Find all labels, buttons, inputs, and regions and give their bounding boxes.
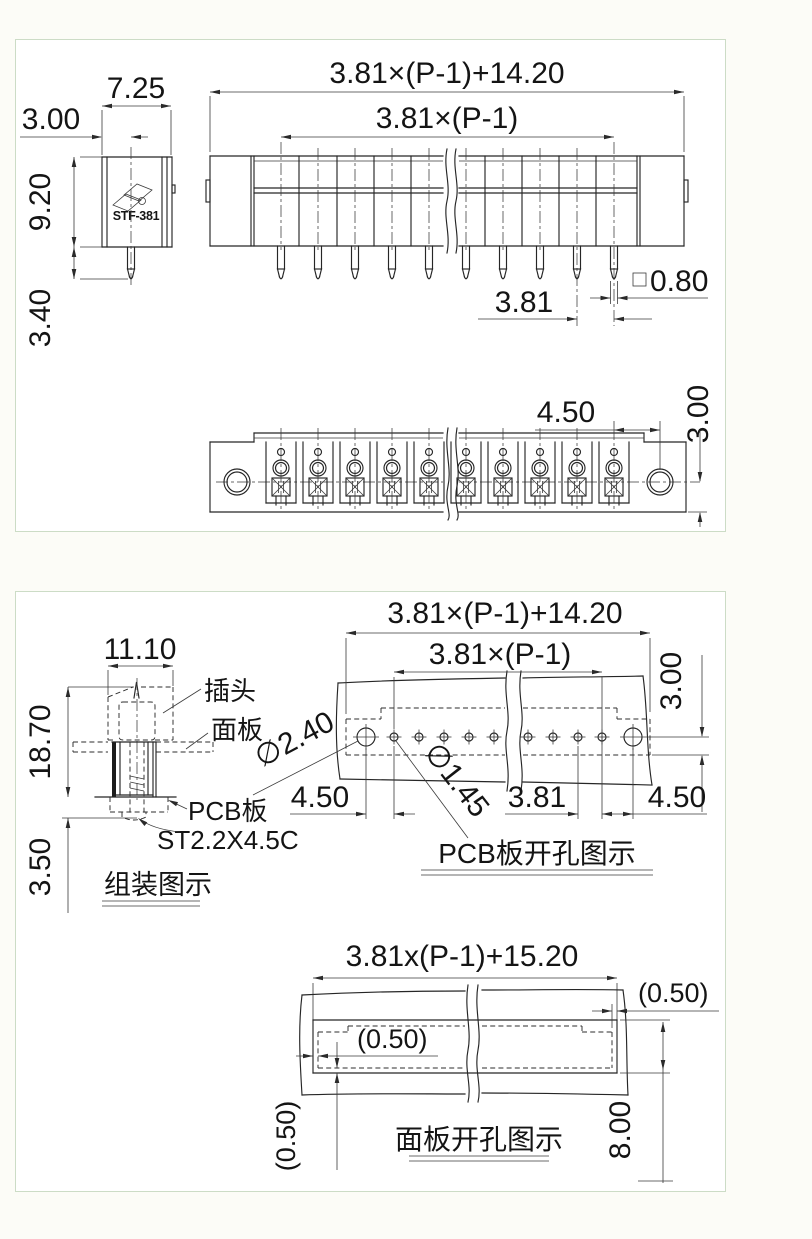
arrowhead bbox=[601, 296, 611, 301]
label-plug: 插头 bbox=[204, 676, 256, 706]
arrowhead bbox=[661, 1060, 666, 1070]
dim-pcb-pitch-span: 3.81×(P-1) bbox=[429, 638, 572, 671]
path-feature bbox=[502, 277, 505, 279]
path-feature bbox=[134, 682, 139, 698]
arrowhead bbox=[698, 512, 703, 522]
dim-pin-pitch: 3.81 bbox=[495, 286, 553, 319]
arrowhead bbox=[66, 687, 71, 697]
sheet2-drawing: 11.1018.703.50插头面板PCB板ST2.2X4.5C组装图示 3.8… bbox=[16, 592, 725, 1191]
dim-pin-square: 0.80 bbox=[650, 265, 708, 298]
pcb-hole-view: 3.81×(P-1)+14.203.81×(P-1)3.00∅2.40∅1.45… bbox=[249, 597, 709, 875]
arrowhead bbox=[346, 631, 356, 636]
path-feature bbox=[520, 671, 522, 791]
arrowhead bbox=[318, 1054, 328, 1059]
arrowhead bbox=[592, 670, 602, 675]
arrowhead bbox=[356, 812, 366, 817]
line-segment bbox=[431, 269, 433, 277]
line-segment bbox=[320, 269, 322, 277]
dim-pcb-total-width: 3.81×(P-1)+14.20 bbox=[387, 597, 622, 630]
arrowhead bbox=[66, 818, 71, 828]
line-segment bbox=[315, 269, 317, 277]
dim-cutout-height: 8.00 bbox=[604, 1101, 637, 1159]
path-feature bbox=[467, 985, 469, 1102]
arrowhead bbox=[604, 135, 614, 140]
dim-assembly-width: 11.10 bbox=[104, 633, 177, 666]
dim-body-width: 7.25 bbox=[107, 72, 165, 105]
path-feature bbox=[391, 277, 394, 279]
line-segment bbox=[616, 269, 618, 277]
path-feature bbox=[340, 779, 505, 782]
arrowhead bbox=[313, 976, 323, 981]
dim-pcb-edge: 3.00 bbox=[655, 652, 688, 710]
dimension-sheet-1: STF-3817.253.009.203.40 3.81×(P-1)+14.20… bbox=[15, 39, 726, 532]
arrowhead bbox=[568, 812, 578, 817]
arrowhead bbox=[72, 247, 77, 257]
arrowhead bbox=[335, 1058, 340, 1068]
line-segment bbox=[394, 269, 396, 277]
dim-pin-offset: 3.00 bbox=[22, 103, 80, 136]
arrowhead bbox=[168, 800, 178, 806]
top-view: 4.503.00 bbox=[210, 385, 715, 527]
line-segment bbox=[505, 269, 507, 277]
arrowhead bbox=[303, 1054, 313, 1059]
path-feature bbox=[623, 990, 628, 1095]
line-segment bbox=[133, 269, 135, 277]
arrowhead bbox=[66, 787, 71, 797]
arrowhead bbox=[72, 157, 77, 167]
rect-feature bbox=[684, 180, 688, 202]
rect-feature bbox=[112, 742, 116, 797]
path-feature bbox=[446, 149, 448, 253]
arrowhead bbox=[602, 812, 612, 817]
panel-cutout-view: 3.81x(P-1)+15.20(0.50)(0.50)(0.50)8.00面板… bbox=[271, 940, 719, 1183]
path-feature bbox=[523, 676, 643, 678]
dim-pin-length: 3.40 bbox=[24, 289, 57, 347]
arrowhead bbox=[650, 428, 660, 433]
dim-pitch-span: 3.81×(P-1) bbox=[376, 102, 519, 135]
path-feature bbox=[482, 1093, 628, 1095]
path-feature bbox=[317, 277, 320, 279]
arrowhead bbox=[674, 90, 684, 95]
path-feature bbox=[539, 277, 542, 279]
path-feature bbox=[122, 812, 146, 820]
path-feature bbox=[456, 428, 458, 520]
path-feature bbox=[302, 991, 465, 995]
dim-body-height: 9.20 bbox=[24, 173, 57, 231]
dim-pin-below-pcb: 3.50 bbox=[24, 838, 57, 896]
arrowhead bbox=[618, 296, 628, 301]
path-feature bbox=[300, 995, 302, 1095]
path-feature bbox=[465, 277, 468, 279]
path-feature bbox=[455, 149, 457, 253]
arrowhead bbox=[131, 135, 141, 140]
rect-feature bbox=[172, 185, 175, 193]
path-feature bbox=[643, 676, 652, 785]
path-feature bbox=[338, 678, 505, 683]
dim-assembly-height: 18.70 bbox=[24, 704, 57, 779]
arrowhead bbox=[161, 104, 171, 109]
arrowhead bbox=[617, 1009, 627, 1014]
line-segment bbox=[537, 269, 539, 277]
arrowhead bbox=[700, 727, 705, 737]
logo-model: STF-381 bbox=[113, 209, 160, 223]
line-segment bbox=[463, 269, 465, 277]
dim-cutout-total-width: 3.81x(P-1)+15.20 bbox=[346, 940, 579, 973]
arrowhead bbox=[623, 812, 633, 817]
label-screw-spec: ST2.2X4.5C bbox=[157, 825, 299, 855]
arrowhead bbox=[210, 90, 220, 95]
arrowhead bbox=[138, 818, 147, 826]
dim-pcb-end-left: 4.50 bbox=[291, 781, 349, 814]
arrowhead bbox=[661, 1022, 666, 1032]
line-segment bbox=[579, 269, 581, 277]
rect-feature bbox=[206, 180, 210, 202]
line-segment bbox=[186, 733, 208, 749]
path-feature bbox=[477, 985, 479, 1102]
dim-pcb-end-right: 4.50 bbox=[648, 781, 706, 814]
arrowhead bbox=[72, 237, 77, 247]
arrowhead bbox=[614, 428, 624, 433]
arrowhead bbox=[335, 1073, 340, 1083]
line-segment bbox=[283, 269, 285, 277]
path-feature bbox=[447, 428, 449, 520]
line-segment bbox=[128, 269, 130, 277]
path-feature bbox=[280, 277, 283, 279]
view-title-pcb-holes: PCB板开孔图示 bbox=[438, 838, 636, 869]
line-segment bbox=[500, 269, 502, 277]
line-segment bbox=[108, 687, 133, 697]
arrowhead bbox=[72, 269, 77, 279]
line-segment bbox=[574, 269, 576, 277]
dim-gap-side: (0.50) bbox=[271, 1101, 301, 1172]
arrowhead bbox=[567, 317, 577, 322]
line-segment bbox=[468, 269, 470, 277]
label-pcb-board: PCB板 bbox=[188, 796, 267, 826]
arrowhead bbox=[640, 631, 650, 636]
line-segment bbox=[611, 269, 613, 277]
dim-mount-hole-offset: 4.50 bbox=[537, 396, 595, 429]
dim-gap-inner: (0.50) bbox=[357, 1024, 428, 1054]
arrowhead bbox=[614, 317, 624, 322]
sheet1-drawing: STF-3817.253.009.203.40 3.81×(P-1)+14.20… bbox=[16, 40, 725, 531]
dimension-sheet-2: 11.1018.703.50插头面板PCB板ST2.2X4.5C组装图示 3.8… bbox=[15, 591, 726, 1192]
arrowhead bbox=[92, 135, 102, 140]
dim-pcb-pitch: 3.81 bbox=[508, 781, 566, 814]
view-title-assembly: 组装图示 bbox=[104, 870, 212, 900]
line-segment bbox=[357, 269, 359, 277]
view-title-cutout: 面板开孔图示 bbox=[395, 1124, 563, 1155]
assembly-view: 11.1018.703.50插头面板PCB板ST2.2X4.5C组装图示 bbox=[24, 633, 299, 913]
dim-gap-top: (0.50) bbox=[638, 978, 709, 1008]
line-segment bbox=[542, 269, 544, 277]
path-feature bbox=[354, 277, 357, 279]
arrowhead bbox=[602, 1009, 612, 1014]
side-view: STF-3817.253.009.203.40 bbox=[20, 72, 175, 347]
line-segment bbox=[426, 269, 428, 277]
arrowhead bbox=[700, 755, 705, 765]
arrowhead bbox=[607, 976, 617, 981]
path-feature bbox=[506, 671, 508, 791]
front-view: 3.81×(P-1)+14.203.81×(P-1)3.810.80 bbox=[206, 57, 708, 326]
label-panel: 面板 bbox=[211, 715, 263, 745]
spec-drawing-page: { "sheet1": { "side": { "model": "STF-38… bbox=[0, 0, 812, 1239]
line-segment bbox=[352, 269, 354, 277]
path-feature bbox=[302, 1094, 465, 1095]
arrowhead bbox=[698, 472, 703, 482]
dim-center-to-edge: 3.00 bbox=[682, 385, 715, 443]
rect-feature bbox=[633, 273, 646, 286]
arrowhead bbox=[394, 670, 404, 675]
path-feature bbox=[428, 277, 431, 279]
dim-total-width: 3.81×(P-1)+14.20 bbox=[329, 57, 564, 90]
line-segment bbox=[278, 269, 280, 277]
line-segment bbox=[163, 689, 201, 713]
line-segment bbox=[389, 269, 391, 277]
arrowhead bbox=[281, 135, 291, 140]
arrowhead bbox=[394, 812, 404, 817]
